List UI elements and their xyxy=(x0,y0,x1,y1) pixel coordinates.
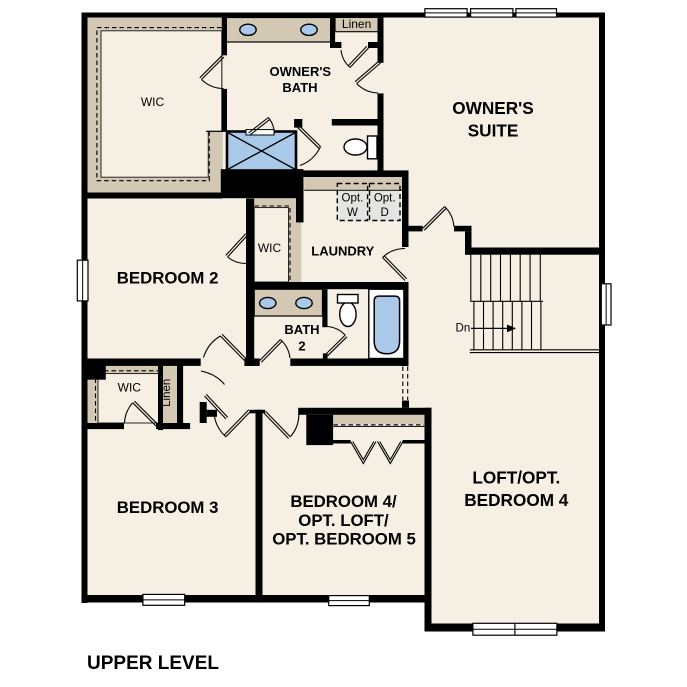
svg-text:D: D xyxy=(381,207,389,219)
svg-text:Opt.: Opt. xyxy=(374,193,396,205)
svg-text:BEDROOM 2: BEDROOM 2 xyxy=(117,269,219,288)
svg-text:WIC: WIC xyxy=(258,241,282,255)
svg-text:2: 2 xyxy=(298,339,305,354)
svg-text:OPT. BEDROOM 5: OPT. BEDROOM 5 xyxy=(272,529,416,548)
svg-text:BATH: BATH xyxy=(282,80,317,95)
svg-text:W: W xyxy=(347,207,358,219)
svg-text:Linen: Linen xyxy=(161,379,173,407)
svg-text:OWNER'S: OWNER'S xyxy=(270,64,332,79)
svg-text:LAUNDRY: LAUNDRY xyxy=(311,244,374,259)
svg-text:Linen: Linen xyxy=(342,17,371,31)
svg-text:BEDROOM 4/: BEDROOM 4/ xyxy=(290,492,397,511)
svg-text:BATH: BATH xyxy=(284,322,319,337)
svg-text:Dn: Dn xyxy=(456,323,471,335)
svg-text:WIC: WIC xyxy=(118,381,142,395)
svg-text:Opt.: Opt. xyxy=(342,193,364,205)
svg-text:BEDROOM 4: BEDROOM 4 xyxy=(464,490,569,510)
svg-text:LOFT/OPT.: LOFT/OPT. xyxy=(472,468,560,488)
svg-text:UPPER LEVEL: UPPER LEVEL xyxy=(87,653,219,674)
svg-text:BEDROOM 3: BEDROOM 3 xyxy=(117,498,219,517)
svg-text:OWNER'S: OWNER'S xyxy=(452,98,533,118)
svg-text:SUITE: SUITE xyxy=(468,121,519,141)
svg-text:WIC: WIC xyxy=(141,95,165,109)
svg-text:OPT. LOFT/: OPT. LOFT/ xyxy=(298,511,389,530)
